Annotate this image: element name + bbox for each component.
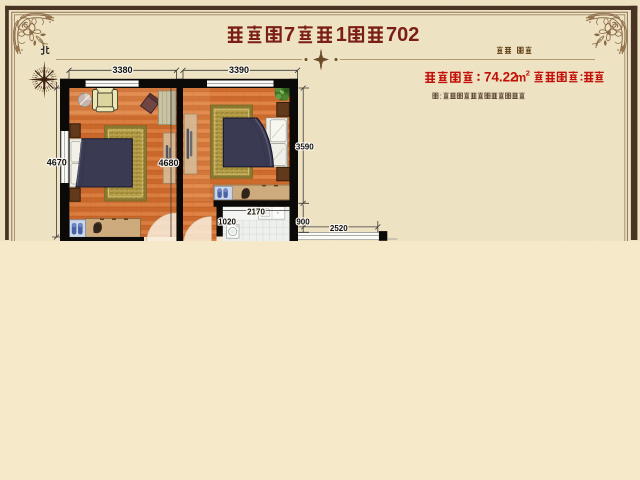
svg-text::: : [440, 92, 442, 101]
svg-text:2: 2 [526, 69, 530, 78]
svg-text:7: 7 [284, 24, 295, 46]
svg-text:2170: 2170 [247, 208, 265, 217]
svg-text::: : [580, 70, 584, 84]
svg-text:3390: 3390 [229, 65, 249, 75]
svg-text:74.22: 74.22 [484, 69, 518, 84]
svg-text:702: 702 [386, 24, 419, 46]
svg-text:4680: 4680 [158, 158, 178, 168]
svg-text:900: 900 [296, 218, 310, 227]
svg-text:3590: 3590 [296, 142, 314, 151]
svg-text:3380: 3380 [112, 65, 132, 75]
svg-text:1020: 1020 [218, 218, 236, 227]
svg-text:m: m [516, 70, 527, 84]
svg-text:2520: 2520 [330, 224, 348, 233]
svg-text:1: 1 [336, 24, 347, 46]
svg-text:4670: 4670 [47, 157, 67, 167]
